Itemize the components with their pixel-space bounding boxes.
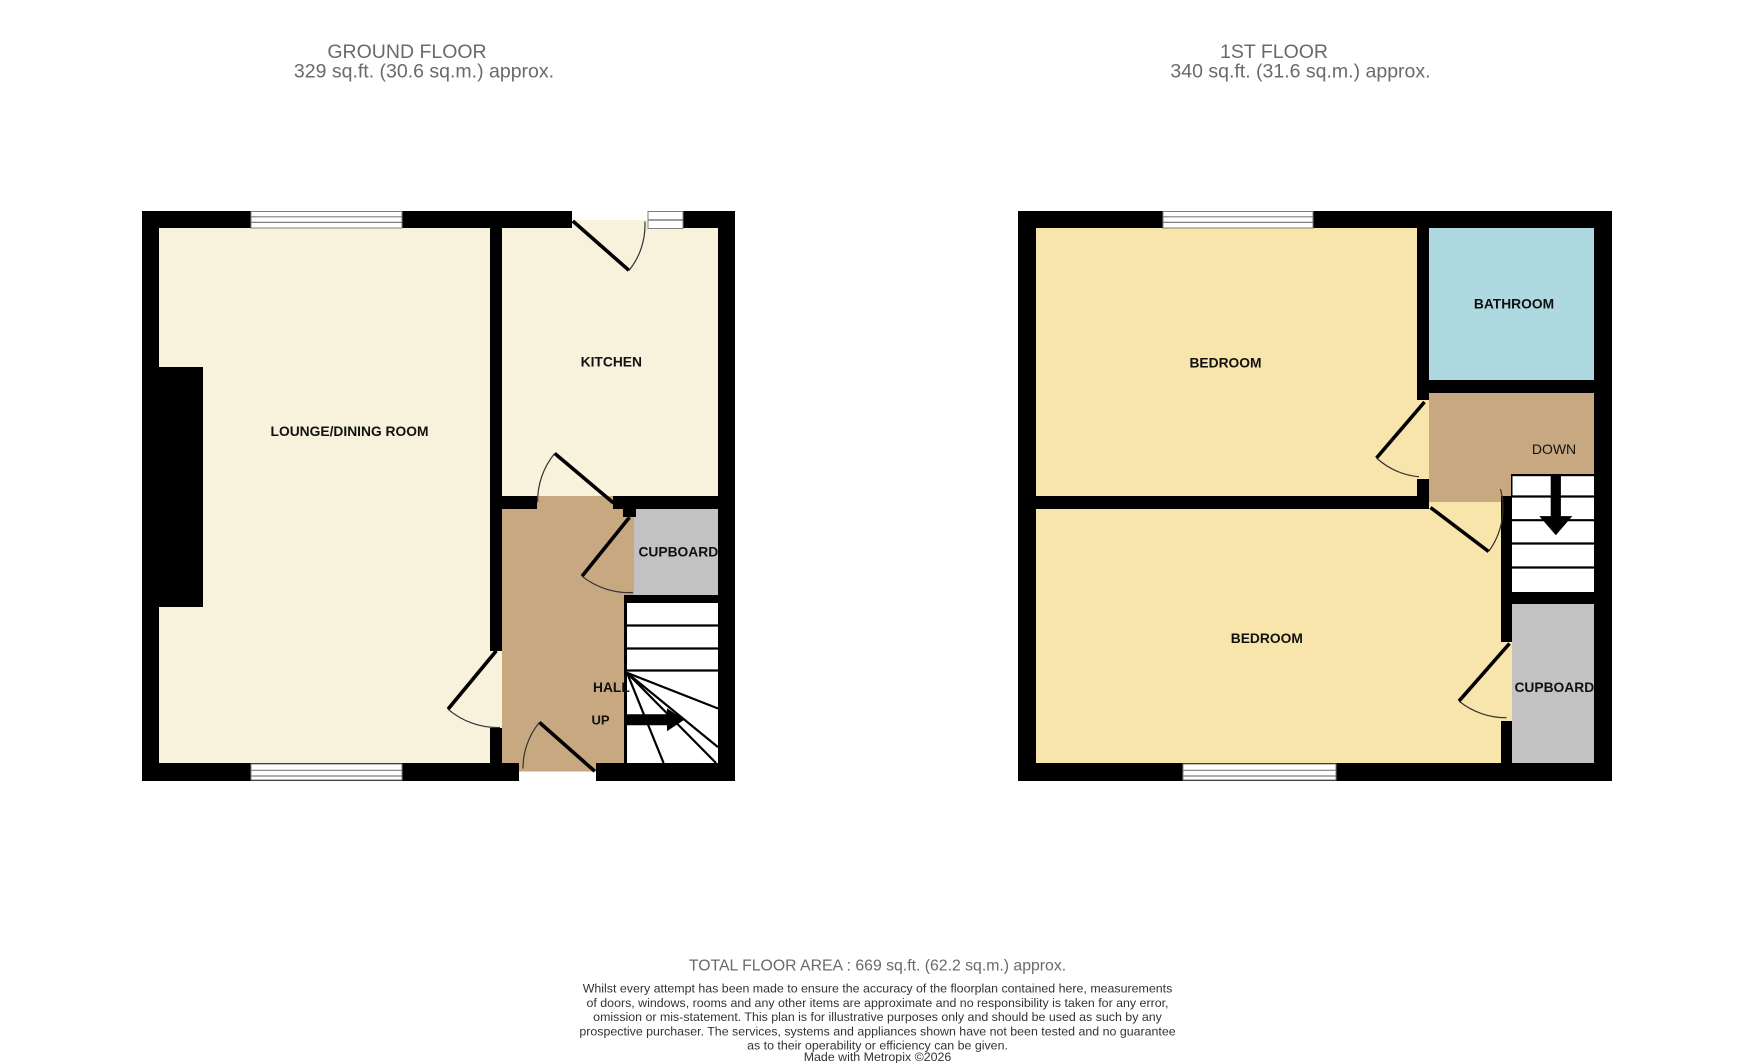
- svg-text:Whilst every attempt has been: Whilst every attempt has been made to en…: [583, 982, 1173, 996]
- svg-text:CUPBOARD: CUPBOARD: [638, 545, 718, 560]
- svg-text:340 sq.ft. (31.6 sq.m.) approx: 340 sq.ft. (31.6 sq.m.) approx.: [1170, 61, 1430, 83]
- svg-text:BEDROOM: BEDROOM: [1231, 631, 1303, 646]
- svg-text:omission or mis-statement. Thi: omission or mis-statement. This plan is …: [593, 1010, 1162, 1024]
- svg-text:329 sq.ft. (30.6 sq.m.) approx: 329 sq.ft. (30.6 sq.m.) approx.: [294, 61, 554, 83]
- svg-text:KITCHEN: KITCHEN: [581, 355, 642, 370]
- svg-text:prospective purchaser. The ser: prospective purchaser. The services, sys…: [579, 1024, 1175, 1038]
- svg-text:Made with Metropix ©2026: Made with Metropix ©2026: [804, 1050, 952, 1063]
- svg-text:BEDROOM: BEDROOM: [1189, 356, 1261, 371]
- svg-text:BATHROOM: BATHROOM: [1474, 297, 1554, 312]
- svg-text:DOWN: DOWN: [1532, 441, 1576, 457]
- svg-text:LOUNGE/DINING ROOM: LOUNGE/DINING ROOM: [271, 424, 429, 439]
- svg-text:HALL: HALL: [593, 680, 630, 695]
- svg-text:of doors, windows, rooms and a: of doors, windows, rooms and any other i…: [587, 996, 1169, 1010]
- svg-text:UP: UP: [591, 713, 609, 728]
- svg-text:TOTAL FLOOR AREA : 669 sq.ft.: TOTAL FLOOR AREA : 669 sq.ft. (62.2 sq.m…: [689, 958, 1066, 975]
- svg-text:CUPBOARD: CUPBOARD: [1514, 680, 1594, 695]
